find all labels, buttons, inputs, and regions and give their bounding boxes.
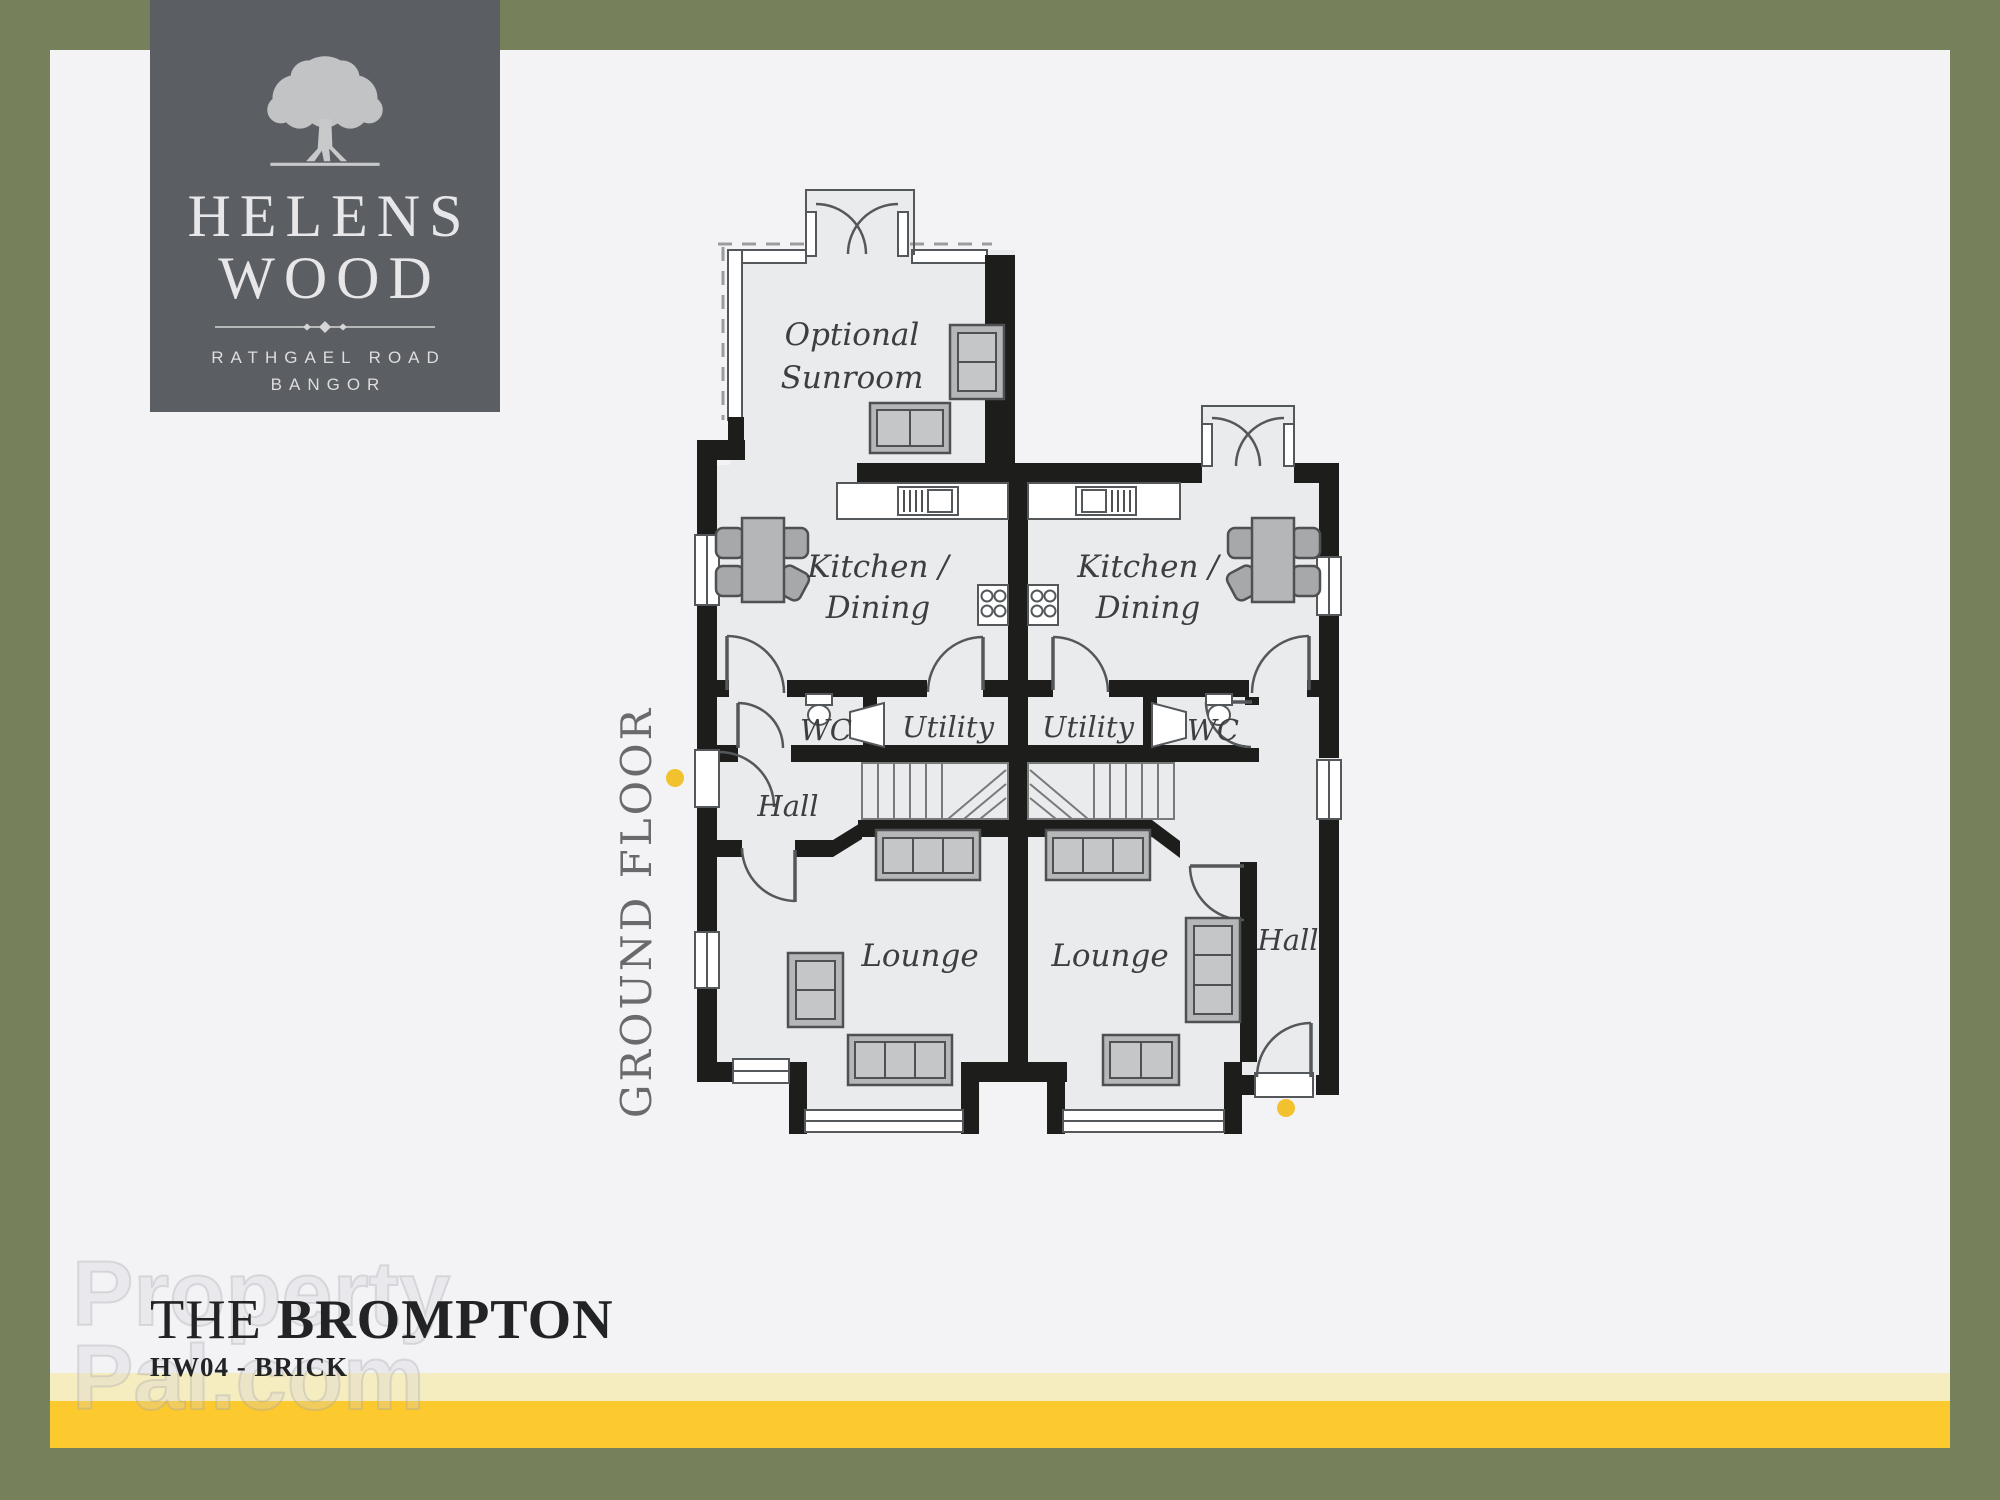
house-type-subtitle: HW04 - BRICK: [150, 1352, 614, 1383]
entrance-marker-left: [666, 769, 684, 787]
logo-name-line2: WOOD: [218, 248, 441, 308]
label-utility-right: Utility: [1042, 710, 1135, 744]
logo-divider-ornament: [215, 320, 435, 334]
label-kitchen-right-line1: Kitchen /: [1076, 549, 1221, 585]
label-hall-right: Hall: [1256, 923, 1318, 957]
label-kitchen-left-line2: Dining: [825, 590, 930, 626]
house-type-name: BROMPTON: [277, 1289, 614, 1351]
label-wc-left: WC: [800, 713, 852, 747]
floor-plan: Optional Sunroom Kitchen / Dining Kitche…: [530, 120, 1370, 1160]
label-sunroom-line2: Sunroom: [781, 360, 924, 396]
label-hall-left: Hall: [756, 789, 818, 823]
floor-label: GROUND FLOOR: [612, 706, 661, 1118]
house-type-prefix: THE: [150, 1289, 262, 1351]
title-block: THE BROMPTON HW04 - BRICK: [150, 1292, 614, 1383]
label-lounge-right: Lounge: [1050, 938, 1168, 974]
label-wc-right: WC: [1187, 713, 1239, 747]
logo-address-line1: RATHGAEL ROAD: [211, 348, 446, 368]
label-lounge-left: Lounge: [860, 938, 978, 974]
label-kitchen-left-line1: Kitchen /: [806, 549, 951, 585]
development-logo-panel: HELENS WOOD RATHGAEL ROAD BANGOR: [150, 0, 500, 412]
gold-strip: [50, 1401, 1950, 1448]
logo-name-line1: HELENS: [188, 186, 472, 246]
page: HELENS WOOD RATHGAEL ROAD BANGOR Propert…: [0, 0, 2000, 1500]
house-type-title: THE BROMPTON: [150, 1292, 614, 1348]
label-utility-left: Utility: [902, 710, 995, 744]
logo-address-line2: BANGOR: [271, 375, 387, 395]
entrance-marker-right: [1277, 1099, 1295, 1117]
oak-tree-icon: [240, 52, 410, 178]
label-kitchen-right-line2: Dining: [1095, 590, 1200, 626]
label-sunroom-line1: Optional: [785, 317, 920, 353]
